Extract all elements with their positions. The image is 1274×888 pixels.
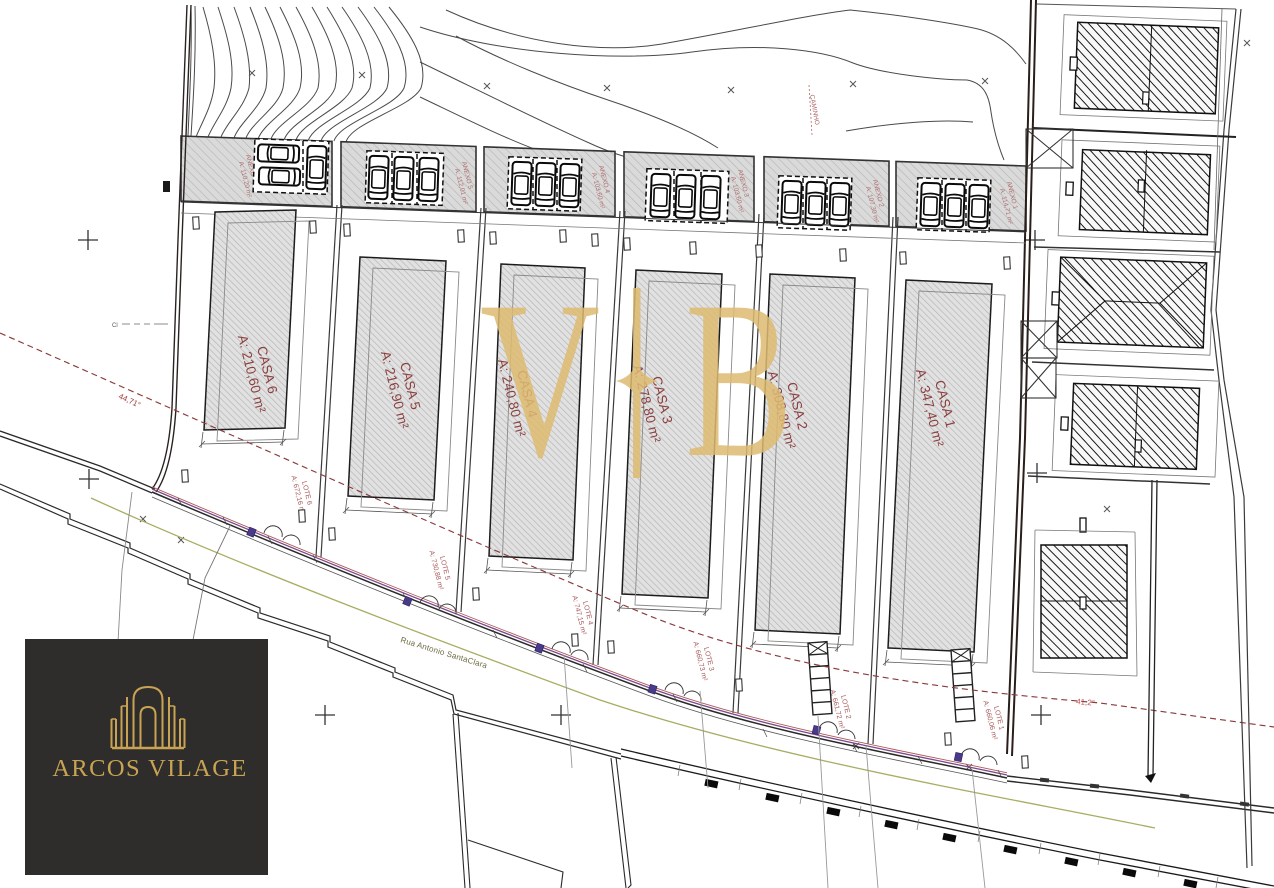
svg-text:ARCOS VILAGE: ARCOS VILAGE: [52, 755, 247, 782]
svg-text:V: V: [480, 255, 600, 504]
svg-text:B: B: [685, 255, 793, 504]
svg-text:Cl: Cl: [112, 323, 118, 329]
svg-text:41,2°: 41,2°: [1076, 697, 1095, 708]
svg-text:Rua Antonio SantaClara: Rua Antonio SantaClara: [399, 635, 488, 670]
